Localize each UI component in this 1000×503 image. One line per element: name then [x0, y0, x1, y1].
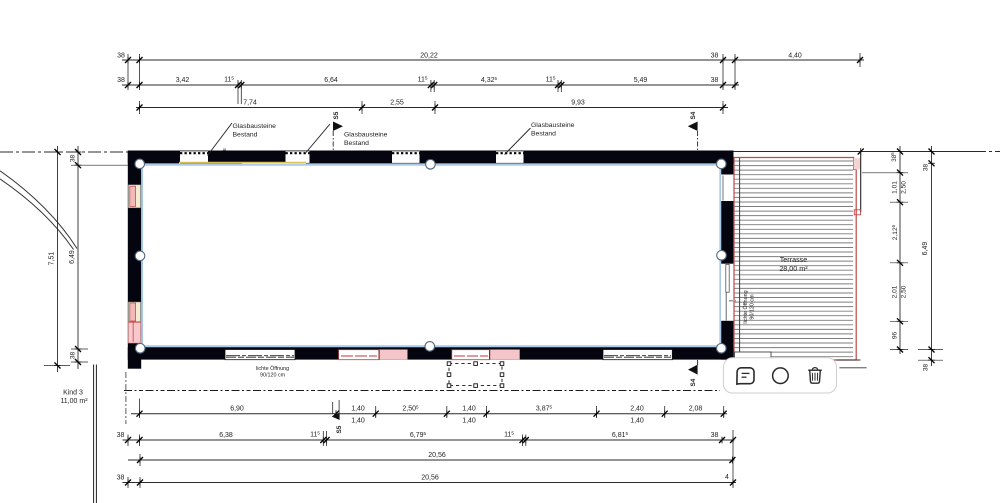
svg-text:E: E [222, 148, 227, 151]
svg-text:7,74: 7,74 [243, 100, 257, 107]
svg-text:2,50: 2,50 [901, 285, 908, 298]
svg-text:38: 38 [70, 155, 77, 163]
svg-text:38: 38 [70, 352, 77, 360]
svg-text:7,51: 7,51 [49, 252, 56, 266]
svg-text:1,40: 1,40 [351, 418, 365, 425]
svg-text:S4: S4 [690, 378, 697, 386]
svg-text:38: 38 [923, 164, 930, 172]
svg-text:lichte Öffnung: lichte Öffnung [742, 290, 749, 323]
svg-text:38: 38 [117, 53, 125, 60]
svg-text:4,40: 4,40 [788, 53, 802, 60]
svg-text:Bestand: Bestand [344, 140, 369, 147]
svg-text:Glasbausteine: Glasbausteine [233, 123, 277, 130]
svg-text:5,49: 5,49 [634, 77, 648, 84]
svg-text:2,08: 2,08 [689, 406, 703, 413]
svg-text:1,40: 1,40 [630, 418, 644, 425]
svg-text:2,50: 2,50 [901, 181, 908, 194]
svg-text:96: 96 [892, 332, 899, 340]
svg-text:6,49: 6,49 [69, 250, 76, 264]
svg-text:38: 38 [117, 432, 125, 439]
svg-text:20,22: 20,22 [420, 53, 438, 60]
svg-text:38: 38 [711, 432, 719, 439]
svg-text:3,42: 3,42 [176, 77, 190, 84]
svg-text:6,90: 6,90 [230, 406, 244, 413]
svg-text:Terrasse: Terrasse [780, 255, 808, 264]
svg-text:28,00 m²: 28,00 m² [779, 264, 808, 273]
svg-text:Glasbausteine: Glasbausteine [531, 122, 575, 129]
svg-text:90/120 cm: 90/120 cm [260, 372, 286, 378]
svg-text:2,01: 2,01 [892, 285, 899, 298]
svg-text:Glasbausteine: Glasbausteine [344, 132, 388, 139]
svg-text:6,64: 6,64 [324, 77, 338, 84]
svg-text:1,40: 1,40 [351, 406, 365, 413]
svg-text:lichte Öffnung: lichte Öffnung [256, 365, 289, 372]
svg-text:1,40: 1,40 [462, 418, 476, 425]
svg-text:2,40: 2,40 [630, 406, 644, 413]
svg-text:90/120 cm: 90/120 cm [750, 294, 756, 320]
svg-text:38: 38 [117, 475, 125, 482]
svg-text:38: 38 [711, 53, 719, 60]
svg-text:20,56: 20,56 [421, 475, 439, 482]
svg-text:38: 38 [923, 364, 930, 372]
svg-text:Bestand: Bestand [233, 132, 258, 139]
svg-text:Kind 3: Kind 3 [63, 390, 83, 397]
svg-text:4: 4 [725, 474, 729, 481]
svg-text:6,38: 6,38 [219, 432, 233, 439]
svg-text:1,01: 1,01 [892, 181, 899, 194]
svg-text:38: 38 [117, 77, 125, 84]
svg-text:38: 38 [711, 77, 719, 84]
svg-text:6,49: 6,49 [922, 242, 929, 256]
svg-text:2,55: 2,55 [390, 100, 404, 107]
svg-text:9,93: 9,93 [571, 100, 585, 107]
svg-text:20,56: 20,56 [428, 452, 446, 459]
svg-text:Bestand: Bestand [531, 131, 556, 138]
svg-text:S5: S5 [336, 425, 343, 433]
svg-text:S4: S4 [690, 111, 697, 119]
svg-text:S5: S5 [333, 111, 340, 119]
svg-text:11,00 m²: 11,00 m² [60, 398, 88, 405]
svg-text:1,40: 1,40 [462, 406, 476, 413]
